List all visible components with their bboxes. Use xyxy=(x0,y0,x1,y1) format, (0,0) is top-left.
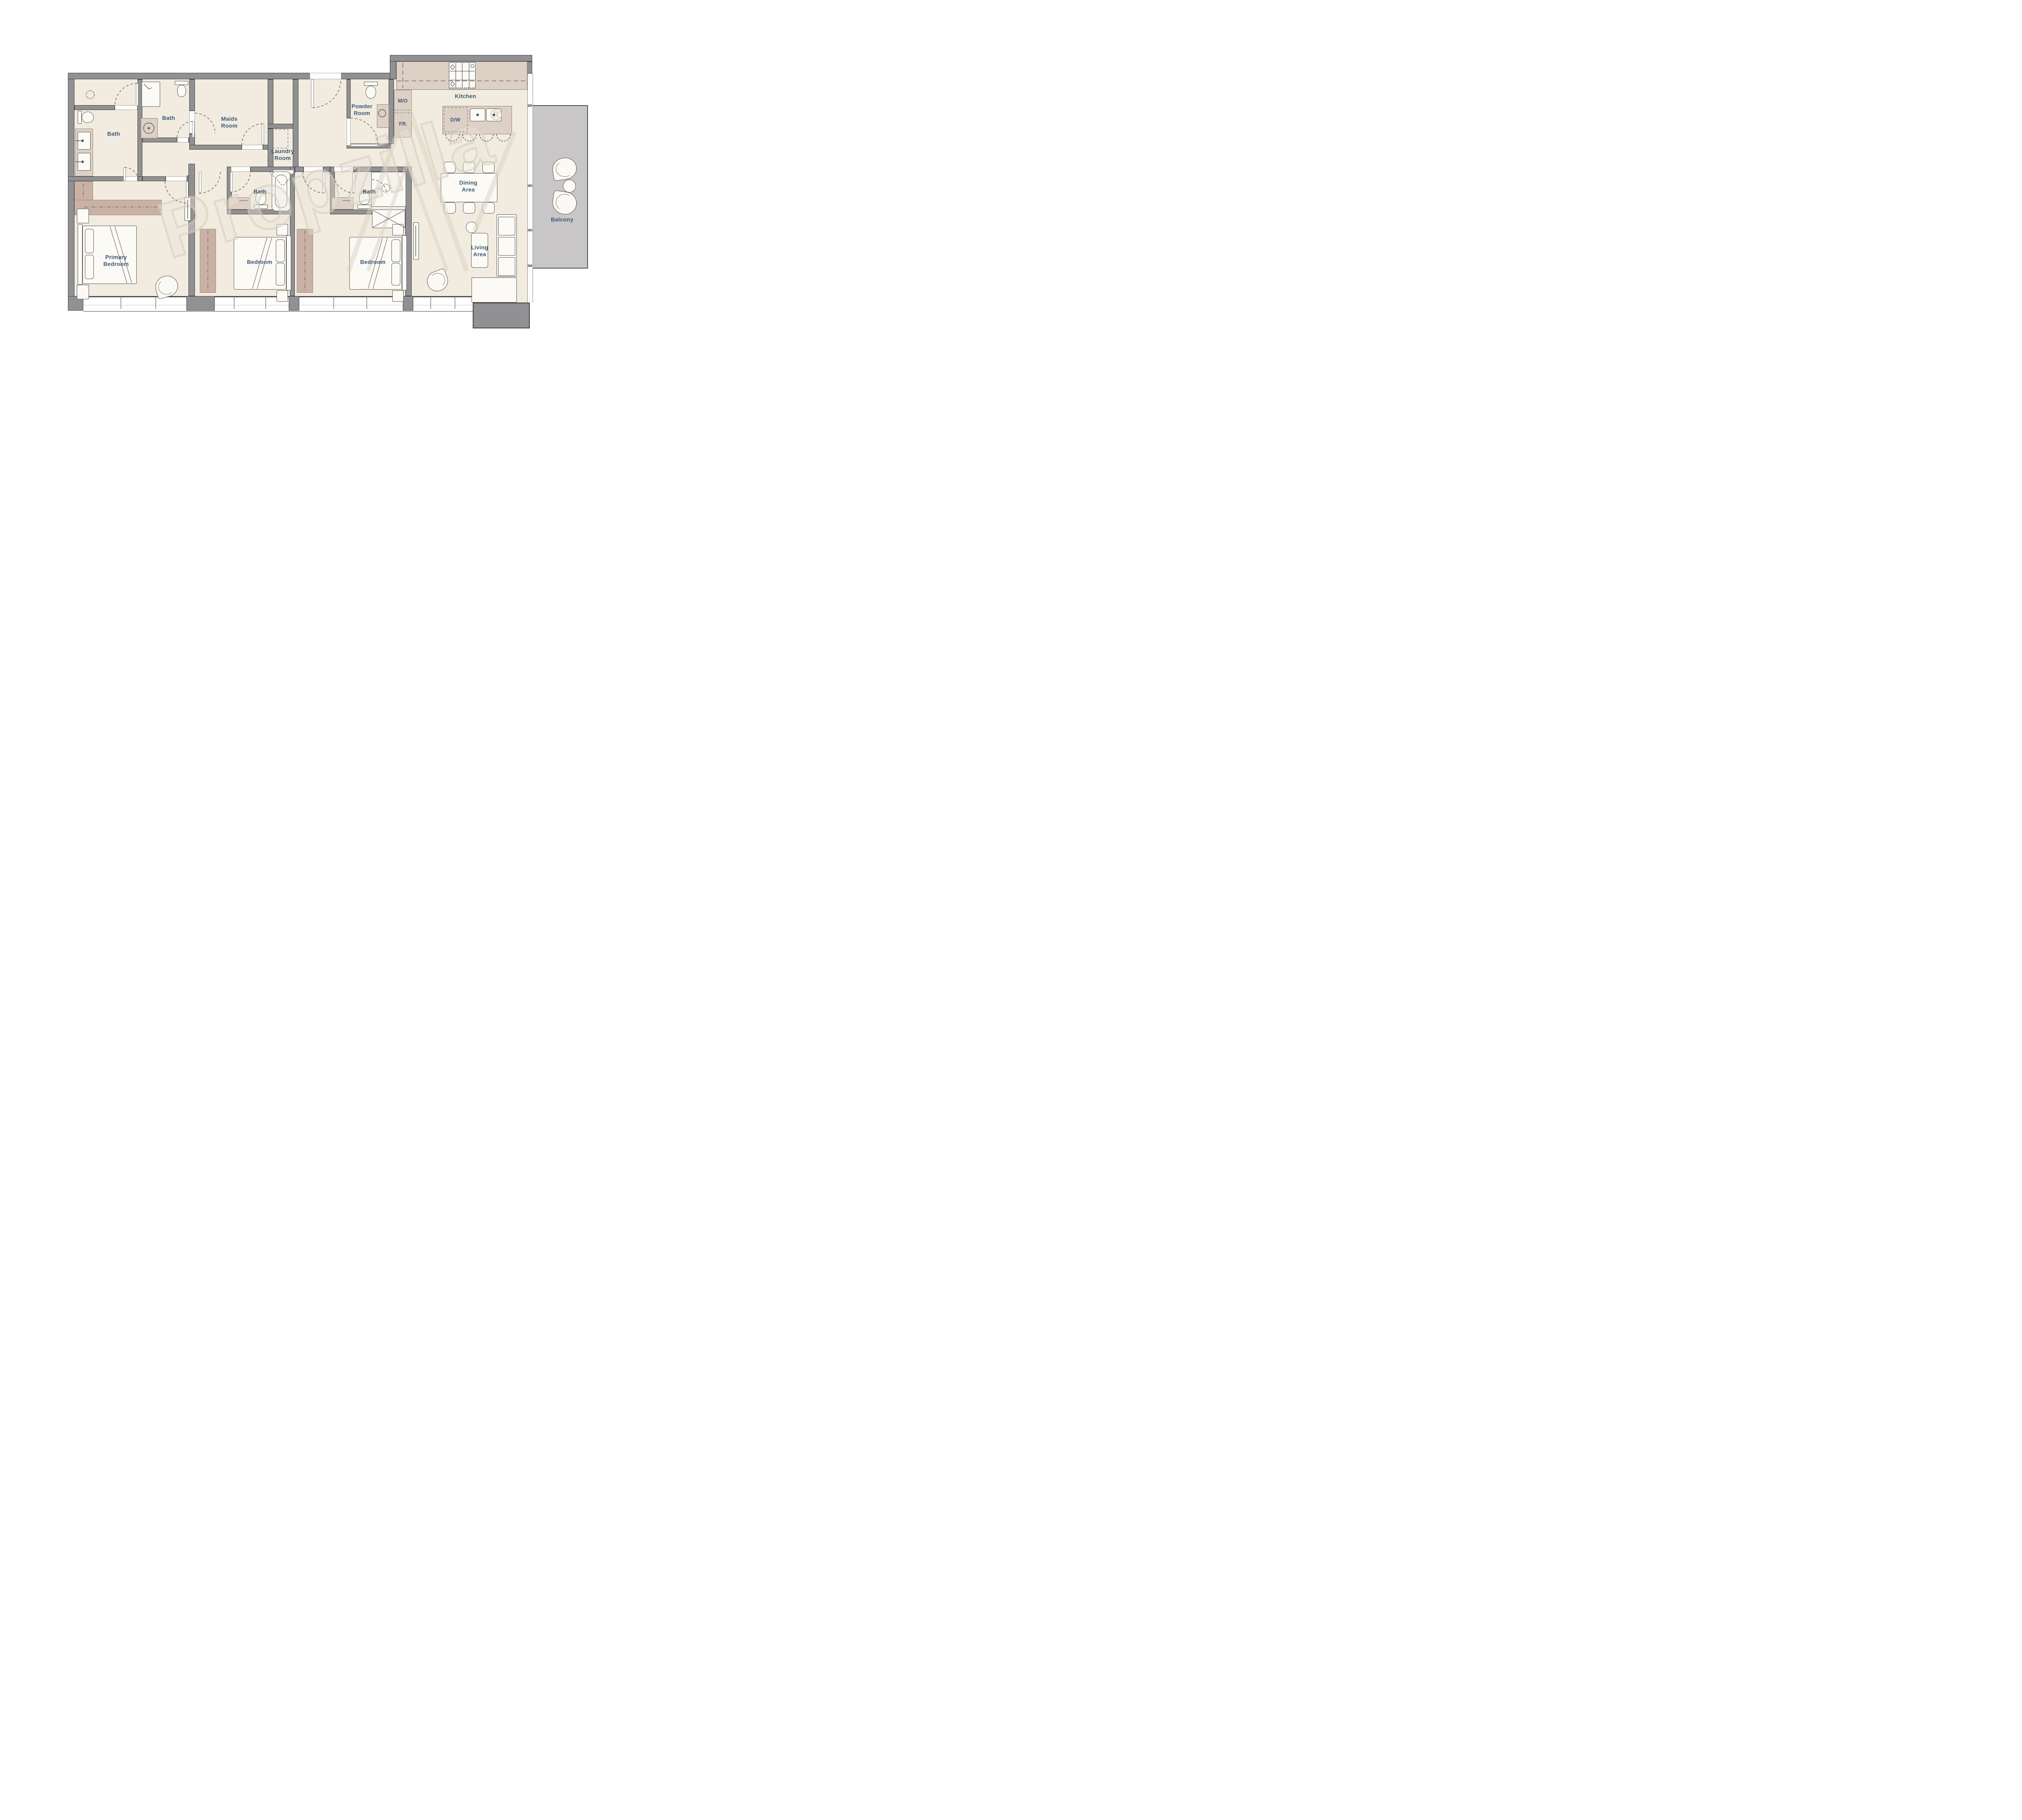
wall-segment xyxy=(295,167,304,172)
room-label-kitchen: Kitchen xyxy=(455,93,476,100)
fixture xyxy=(392,224,404,235)
window-mullion xyxy=(155,297,156,309)
counter xyxy=(377,104,389,128)
door-sill xyxy=(242,145,263,150)
wall-segment xyxy=(353,167,406,172)
glass-mullion xyxy=(527,265,532,267)
door-sill xyxy=(115,105,137,110)
fixture xyxy=(463,162,475,173)
fixture xyxy=(142,82,160,107)
window-mullion xyxy=(234,297,235,309)
fixture xyxy=(175,81,188,85)
fixture xyxy=(498,237,515,256)
fixture xyxy=(444,162,456,173)
fixture xyxy=(177,85,186,97)
fixture xyxy=(277,290,288,302)
room-label-primary-bedroom: Primary Bedroom xyxy=(104,254,129,267)
wardrobe xyxy=(200,229,216,293)
fixture xyxy=(466,222,477,233)
wall-segment xyxy=(389,79,394,144)
wall-segment xyxy=(188,164,195,296)
fixture xyxy=(470,108,485,121)
counter xyxy=(228,197,250,210)
fixture xyxy=(357,205,371,209)
appliance-label-microwave-oven: M/O xyxy=(398,98,408,104)
fixture xyxy=(498,217,515,235)
door-leaf xyxy=(192,121,195,138)
window-mullion xyxy=(265,297,266,309)
fixture xyxy=(364,82,378,86)
fixture xyxy=(391,263,400,286)
room-label-powder: Powder Room xyxy=(351,103,372,116)
door-sill xyxy=(166,176,187,181)
fixture xyxy=(286,235,291,290)
wardrobe xyxy=(297,229,313,293)
fixture xyxy=(449,62,476,89)
fixture xyxy=(276,239,285,262)
room-label-bath-bedroom-3: Bath xyxy=(363,188,376,195)
wall-segment xyxy=(330,210,372,214)
fixture xyxy=(392,290,404,302)
fixture xyxy=(472,277,517,303)
appliance-label-fridge: FR. xyxy=(399,121,408,127)
fixture xyxy=(482,162,495,173)
fixture xyxy=(254,205,268,209)
wall-segment xyxy=(347,79,351,118)
fixture xyxy=(78,132,91,150)
counter xyxy=(394,90,412,138)
fixture xyxy=(413,222,419,260)
fixture xyxy=(371,172,406,207)
door-leaf xyxy=(199,172,201,193)
window-mullion xyxy=(455,297,455,309)
fixture xyxy=(77,285,89,299)
door-sill xyxy=(177,138,188,142)
fixture xyxy=(85,255,94,279)
wall-segment xyxy=(74,105,115,110)
fixture xyxy=(276,263,285,286)
door-sill xyxy=(334,167,353,172)
fixture xyxy=(563,180,576,193)
fixture xyxy=(85,229,94,253)
door-sill xyxy=(347,118,351,146)
wall-segment xyxy=(390,55,532,61)
fixture xyxy=(82,112,94,123)
room-label-bath-bedroom-2: Bath xyxy=(254,188,266,195)
door-leaf xyxy=(311,79,314,108)
door-leaf xyxy=(323,172,325,193)
fixture xyxy=(482,202,495,214)
fixture xyxy=(486,108,501,121)
glass-mullion xyxy=(527,229,532,231)
fixture xyxy=(184,197,191,221)
room-label-laundry: Laundry Room xyxy=(271,148,294,161)
door-sill xyxy=(310,73,341,79)
fixture xyxy=(366,86,376,99)
glass-mullion xyxy=(527,184,532,187)
wall-segment xyxy=(189,145,242,150)
wall-segment xyxy=(68,73,74,311)
wall-segment xyxy=(268,79,273,129)
fixture xyxy=(391,239,400,262)
glass-wall xyxy=(527,73,533,303)
wall-segment xyxy=(189,79,195,111)
door-sill xyxy=(231,167,250,172)
wall-segment xyxy=(68,73,396,79)
room-label-bath-primary: Bath xyxy=(107,131,120,138)
door-leaf xyxy=(262,124,264,145)
wall-segment xyxy=(289,296,299,311)
wall-segment xyxy=(137,176,142,181)
room-label-living: Living Area xyxy=(471,244,488,257)
room-label-balcony: Balcony xyxy=(551,216,573,223)
wall-segment xyxy=(323,167,330,172)
window-mullion xyxy=(121,297,121,309)
fixture xyxy=(498,257,515,276)
room-label-bedroom-2: Bedroom xyxy=(247,259,273,266)
fixture xyxy=(78,224,82,285)
window-mullion xyxy=(366,297,367,309)
door-leaf xyxy=(353,172,355,193)
fixture xyxy=(277,224,288,235)
counter xyxy=(141,118,158,138)
fixture xyxy=(78,111,82,124)
glass-mullion xyxy=(527,104,532,107)
fixture xyxy=(402,235,407,290)
fixture xyxy=(444,202,456,214)
window-mullion xyxy=(333,297,334,309)
door-leaf xyxy=(136,83,138,106)
door-sill xyxy=(125,176,137,181)
room-label-bath-shared: Bath xyxy=(162,115,175,122)
counter xyxy=(332,197,353,210)
room-label-dining: Dining Area xyxy=(459,179,478,193)
room-label-maids: Maids Room xyxy=(221,115,238,129)
window-mullion xyxy=(430,297,431,309)
fixture xyxy=(463,202,475,214)
wall-segment xyxy=(68,176,125,181)
wall-block-southeast xyxy=(473,303,530,328)
fixture xyxy=(78,153,91,171)
door-sill xyxy=(304,167,323,172)
appliance-label-dishwasher: D/W xyxy=(451,117,461,123)
wall-segment xyxy=(186,296,215,311)
balcony-area xyxy=(532,105,588,269)
fixture xyxy=(275,175,287,208)
door-leaf xyxy=(230,172,233,192)
door-leaf xyxy=(123,167,126,181)
fixture xyxy=(77,209,89,223)
door-leaf xyxy=(351,144,378,146)
room-label-bedroom-3: Bedroom xyxy=(360,259,386,266)
floor-plan-page: Propzilla ® xyxy=(0,0,647,364)
wall-segment xyxy=(403,296,413,311)
floor-plan: Propzilla ® xyxy=(6,4,641,360)
wall-segment xyxy=(142,176,166,181)
